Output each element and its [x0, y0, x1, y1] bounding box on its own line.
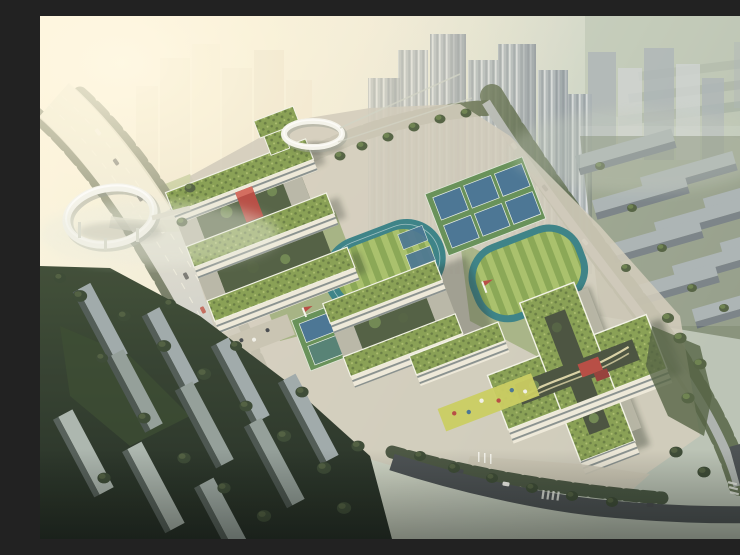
atmosphere [40, 16, 740, 539]
architectural-rendering [40, 16, 740, 539]
